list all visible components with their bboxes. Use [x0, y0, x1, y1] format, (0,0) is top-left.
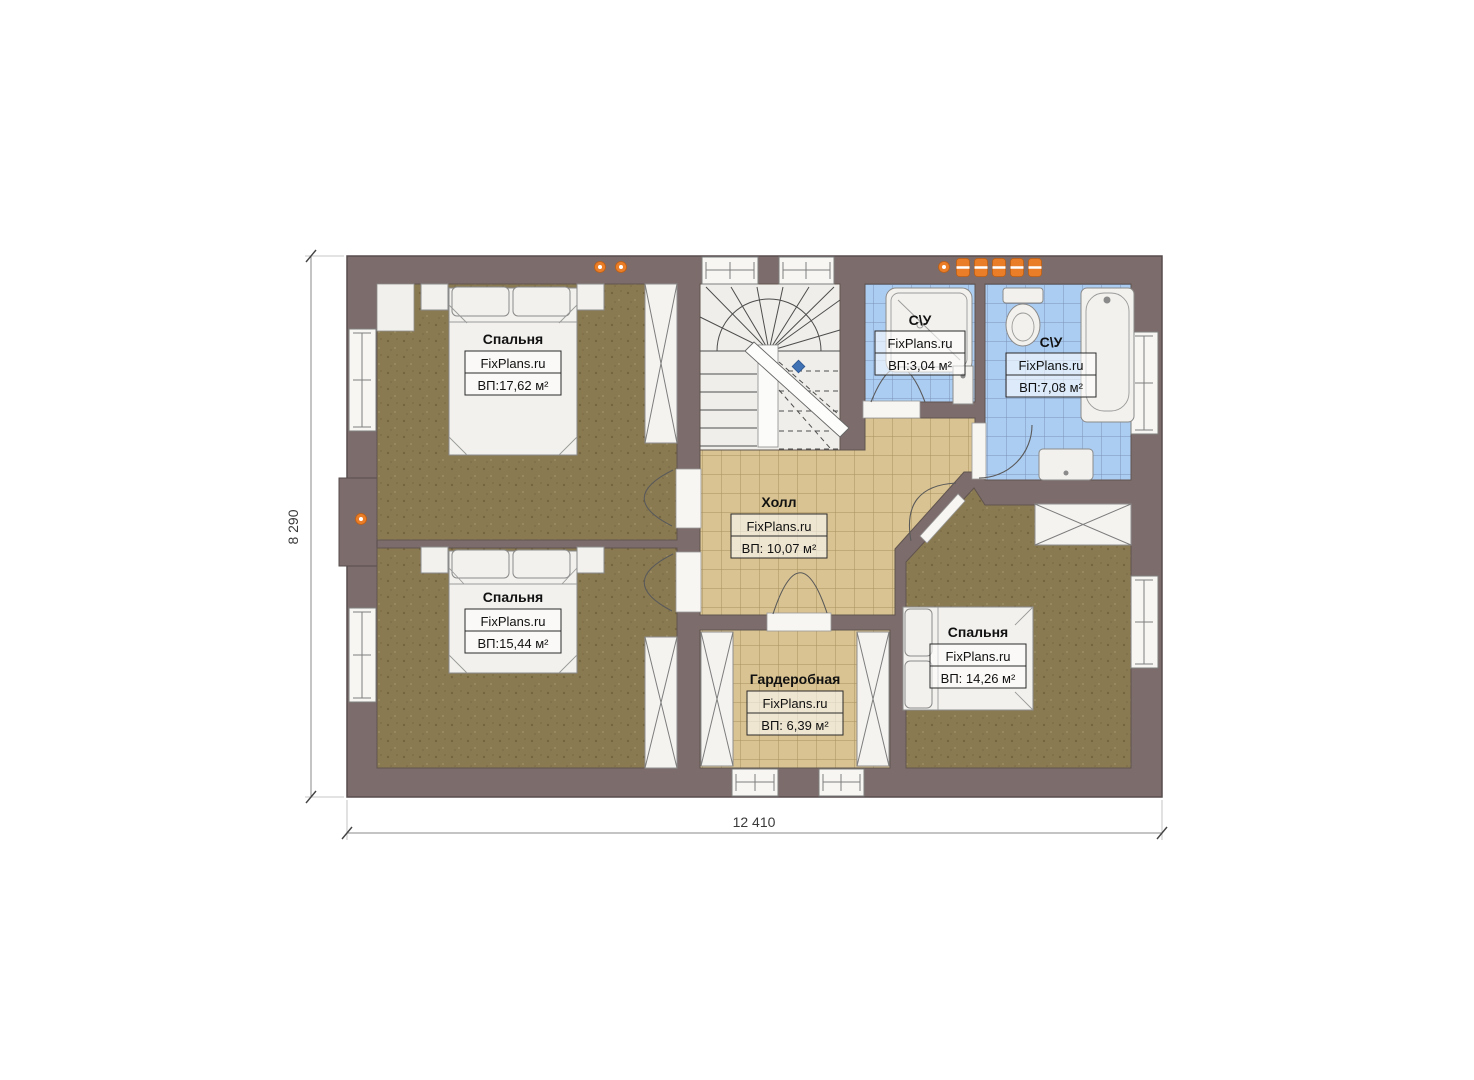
closet-bedroom2	[645, 637, 677, 768]
window-top-2	[779, 257, 834, 284]
room-area: ВП: 6,39 м²	[761, 718, 829, 733]
room-label-wardrobe: Гардеробная FixPlans.ru ВП: 6,39 м²	[747, 671, 843, 735]
closet-wardrobe-left	[701, 632, 733, 766]
toilet	[1003, 288, 1043, 346]
sink	[1039, 449, 1093, 480]
floor-plan: Спальня FixPlans.ru ВП:17,62 м² Спальня …	[0, 0, 1474, 1080]
room-name: С\У	[909, 312, 932, 328]
closet-bedroom3	[1035, 504, 1131, 545]
dimension-bottom: 12 410	[342, 800, 1167, 840]
duct-niche	[377, 284, 414, 331]
watermark: FixPlans.ru	[746, 519, 811, 534]
watermark: FixPlans.ru	[480, 356, 545, 371]
floor-plan-canvas: Спальня FixPlans.ru ВП:17,62 м² Спальня …	[0, 0, 1474, 1080]
room-name: Спальня	[483, 589, 543, 605]
room-area: ВП:3,04 м²	[888, 358, 952, 373]
watermark: FixPlans.ru	[1018, 358, 1083, 373]
room-area: ВП:17,62 м²	[477, 378, 549, 393]
window-top-1	[702, 257, 758, 284]
towel-radiator-icon	[957, 259, 1042, 277]
room-area: ВП:15,44 м²	[477, 636, 549, 651]
room-name: Холл	[761, 494, 796, 510]
room-name: Гардеробная	[750, 671, 841, 687]
watermark: FixPlans.ru	[762, 696, 827, 711]
window-right-bottom	[1131, 576, 1158, 668]
window-bottom-1	[732, 769, 778, 796]
watermark: FixPlans.ru	[480, 614, 545, 629]
window-left-top	[349, 329, 376, 431]
room-name: Спальня	[948, 624, 1008, 640]
room-name: Спальня	[483, 331, 543, 347]
window-bottom-2	[819, 769, 864, 796]
room-area: ВП: 10,07 м²	[742, 541, 817, 556]
dimension-vertical-label: 8 290	[285, 509, 301, 544]
room-area: ВП: 14,26 м²	[941, 671, 1016, 686]
room-name: С\У	[1040, 334, 1063, 350]
closet-wardrobe-right	[857, 632, 889, 766]
dimension-left: 8 290	[285, 250, 344, 803]
watermark: FixPlans.ru	[945, 649, 1010, 664]
dimension-horizontal-label: 12 410	[733, 814, 776, 830]
room-area: ВП:7,08 м²	[1019, 380, 1083, 395]
window-right-top	[1131, 332, 1158, 434]
watermark: FixPlans.ru	[887, 336, 952, 351]
closet-bedroom1	[645, 284, 677, 443]
window-left-bottom	[349, 608, 376, 702]
